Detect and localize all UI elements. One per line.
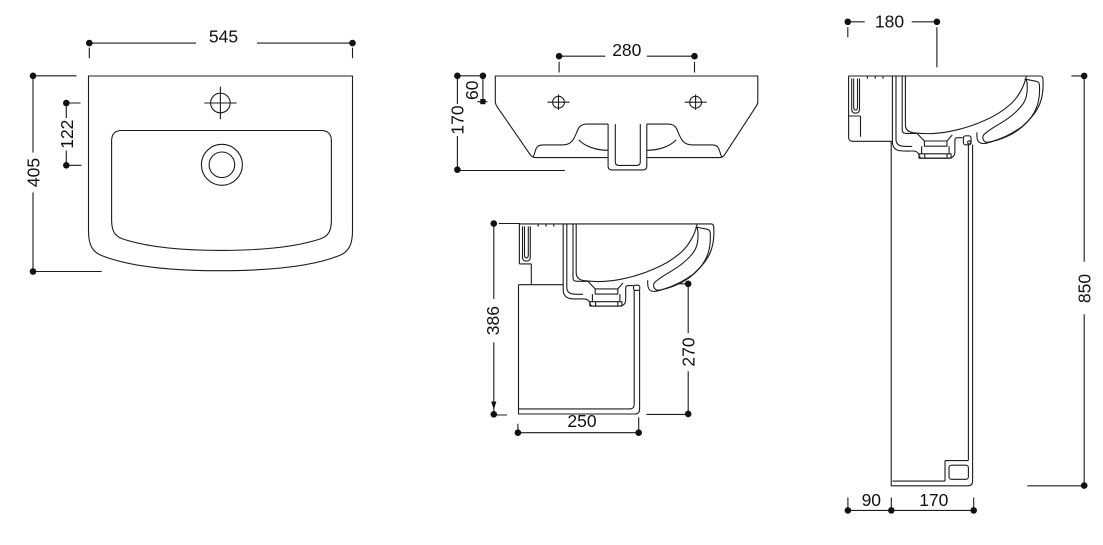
svg-text:180: 180 [875,12,904,32]
svg-text:60: 60 [462,80,482,100]
svg-text:90: 90 [862,490,882,510]
svg-text:250: 250 [567,411,596,431]
svg-text:170: 170 [919,490,948,510]
svg-text:122: 122 [57,120,77,149]
svg-text:280: 280 [612,40,641,60]
svg-text:386: 386 [483,306,503,335]
svg-text:405: 405 [24,158,44,187]
svg-text:545: 545 [209,27,238,47]
svg-text:850: 850 [1075,274,1095,303]
svg-text:270: 270 [679,337,699,366]
svg-text:170: 170 [448,105,468,134]
